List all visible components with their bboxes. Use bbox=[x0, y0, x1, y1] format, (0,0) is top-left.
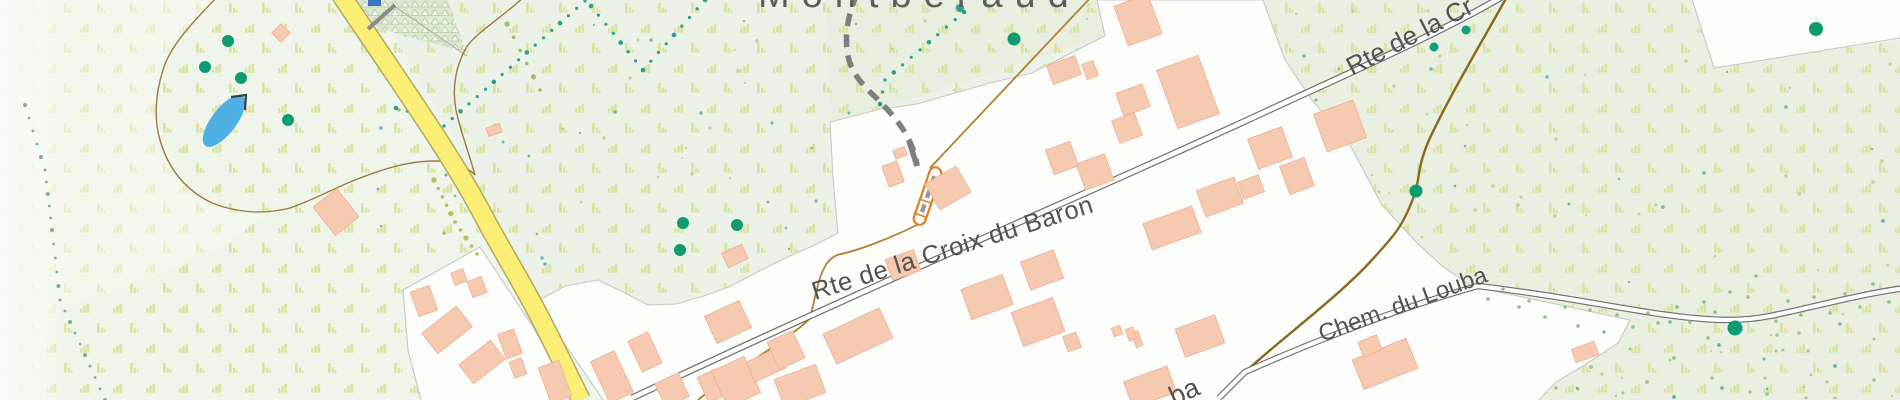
svg-text:Montberaud: Montberaud bbox=[758, 0, 1081, 16]
